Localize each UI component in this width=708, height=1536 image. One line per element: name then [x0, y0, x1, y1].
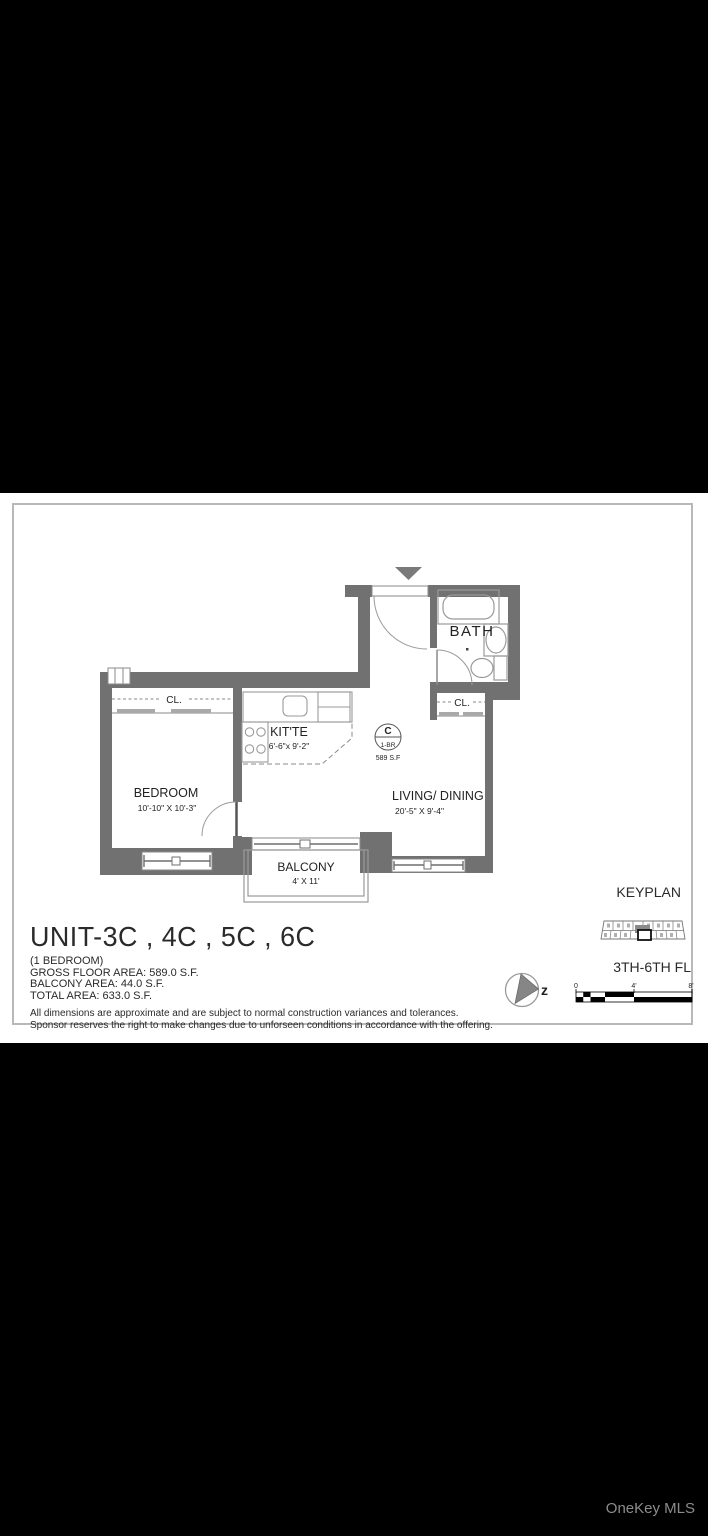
scale-bar: 0 4' 8' [573, 980, 695, 1008]
kitchen-counter [243, 692, 352, 722]
unit-badge-type: 1-BR [381, 742, 396, 749]
floor-plan-drawing: C 1-BR 589 S.F BATH CL. CL. KIT'TE 6'-6"… [95, 555, 535, 915]
keyplan-title: KEYPLAN [616, 884, 681, 900]
compass-icon: z [501, 966, 553, 1012]
total-area: TOTAL AREA: 633.0 S.F. [30, 991, 493, 1003]
bedroom-dims: 10'-10" X 10'-3" [138, 803, 196, 813]
compass-letter: z [541, 982, 548, 998]
toilet [471, 656, 507, 680]
bath-door [437, 650, 472, 685]
living-label: LIVING/ DINING [392, 789, 484, 803]
wall-duct-box [108, 668, 130, 684]
unit-badge-letter: C [384, 726, 391, 737]
floor-range-label: 3TH-6TH FL [613, 959, 691, 975]
title-block: UNIT-3C , 4C , 5C , 6C (1 BEDROOM) GROSS… [30, 921, 493, 1031]
entry-door [372, 586, 428, 649]
floorplan-sheet: C 1-BR 589 S.F BATH CL. CL. KIT'TE 6'-6"… [0, 493, 708, 1043]
letterbox-top [0, 0, 708, 493]
disclaimer-line-1: All dimensions are approximate and are s… [30, 1008, 493, 1020]
kitchen-dims: 6'-6"x 9'-2" [269, 741, 309, 751]
living-dims: 20'-5" X 9'-4" [395, 806, 444, 816]
bedroom-door [202, 802, 237, 836]
bath-label: BATH [450, 623, 495, 640]
listing-photo-page: { "colors": { "wall": "#717171", "line":… [0, 0, 708, 1536]
disclaimer-line-2: Sponsor reserves the right to make chang… [30, 1020, 493, 1032]
entry-arrow-icon [395, 567, 422, 580]
balcony-dims: 4' X 11' [292, 876, 320, 886]
closet-living-label: CL. [454, 698, 470, 709]
keyplan-highlighted-unit [638, 930, 651, 940]
scale-tick-8: 8' [688, 983, 693, 990]
unit-subtitle: (1 BEDROOM) [30, 956, 493, 968]
bedroom-label: BEDROOM [134, 786, 199, 800]
unit-badge: C 1-BR 589 S.F [375, 724, 401, 762]
scale-tick-4: 4' [631, 983, 636, 990]
bath-mark [466, 648, 469, 651]
balcony-area: BALCONY AREA: 44.0 S.F. [30, 979, 493, 991]
balcony-sliding-door [252, 838, 360, 850]
watermark: OneKey MLS [606, 1500, 695, 1517]
scale-tick-0: 0 [574, 983, 578, 990]
closet-bedroom-label: CL. [166, 695, 182, 706]
unit-title: UNIT-3C , 4C , 5C , 6C [30, 921, 474, 953]
stove [242, 722, 268, 762]
bedroom-window [142, 852, 212, 870]
keyplan-diagram [598, 914, 688, 950]
living-window [392, 859, 465, 872]
kitchen-label: KIT'TE [270, 725, 308, 739]
balcony-label: BALCONY [277, 860, 334, 874]
unit-badge-area: 589 S.F [376, 755, 401, 762]
letterbox-bottom [0, 1043, 708, 1536]
